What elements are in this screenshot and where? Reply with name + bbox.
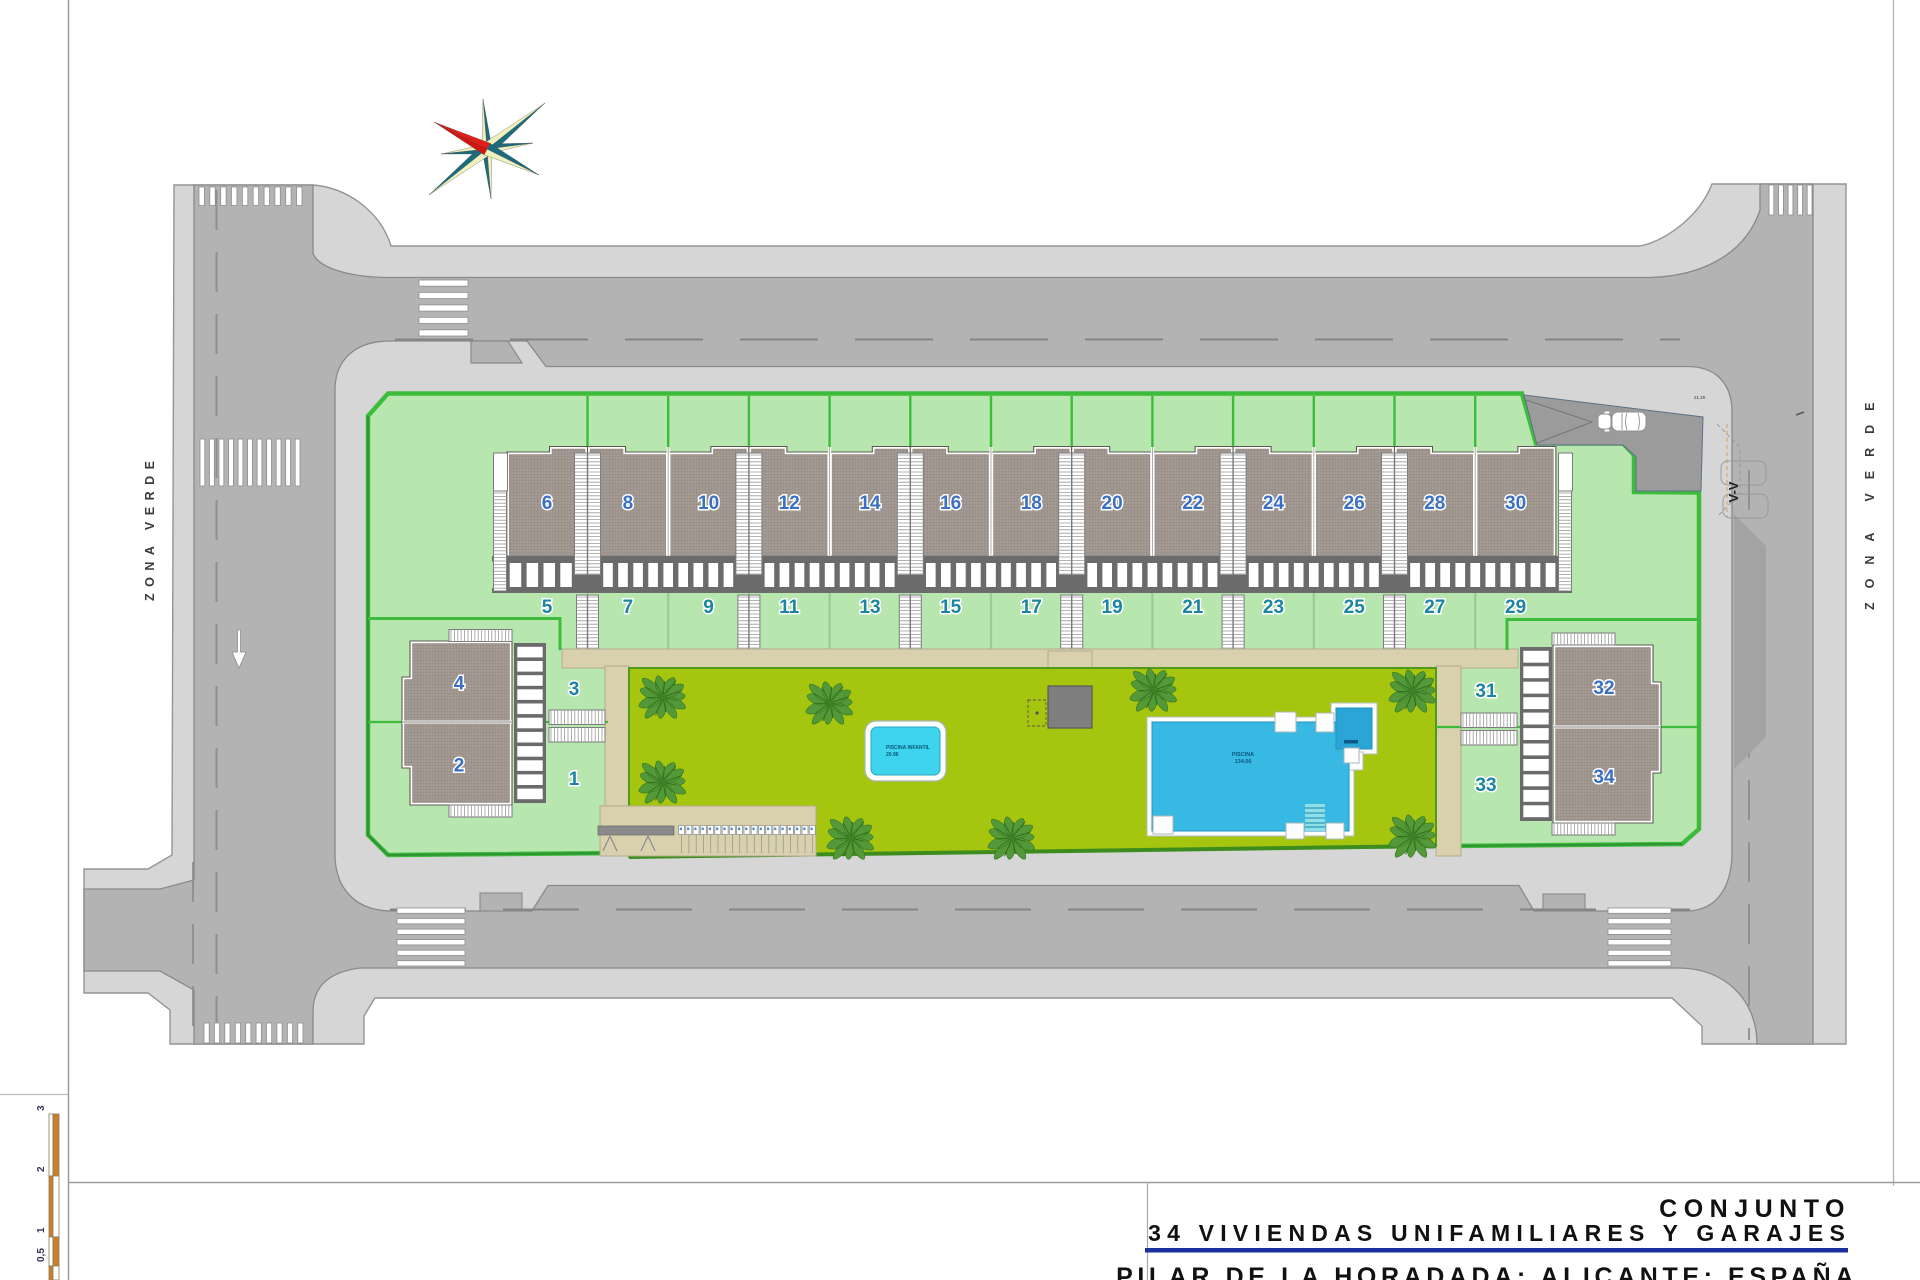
svg-text:134.06: 134.06 — [1235, 759, 1252, 765]
svg-text:3: 3 — [569, 679, 580, 700]
svg-text:18: 18 — [1021, 493, 1042, 514]
svg-text:9: 9 — [703, 597, 714, 618]
svg-text:22: 22 — [1182, 493, 1203, 514]
svg-text:4: 4 — [454, 674, 465, 695]
svg-text:16: 16 — [940, 493, 961, 514]
svg-text:PISCINA INFANTIL: PISCINA INFANTIL — [886, 745, 930, 751]
svg-text:3: 3 — [36, 1105, 47, 1111]
svg-text:34: 34 — [1593, 767, 1615, 788]
svg-text:V-V: V-V — [1726, 481, 1741, 502]
svg-text:34 VIVIENDAS UNIFAMILIARES Y G: 34 VIVIENDAS UNIFAMILIARES Y GARAJES — [1148, 1220, 1851, 1246]
svg-text:CONJUNTO: CONJUNTO — [1659, 1195, 1851, 1223]
svg-text:11: 11 — [779, 597, 800, 618]
svg-text:33: 33 — [1475, 775, 1496, 796]
svg-text:1: 1 — [569, 769, 580, 790]
svg-text:31: 31 — [1475, 681, 1497, 702]
svg-text:30: 30 — [1505, 493, 1526, 514]
svg-text:28: 28 — [1424, 493, 1445, 514]
svg-text:20: 20 — [1102, 493, 1123, 514]
svg-text:7: 7 — [623, 597, 634, 618]
svg-text:12: 12 — [779, 493, 800, 514]
svg-text:20.96: 20.96 — [886, 752, 899, 758]
svg-text:ZONA VERDE: ZONA VERDE — [1863, 389, 1877, 611]
svg-text:23: 23 — [1263, 597, 1284, 618]
svg-text:24: 24 — [1263, 493, 1285, 514]
svg-text:PILAR DE LA HORADADA; ALICANTE: PILAR DE LA HORADADA; ALICANTE; ESPAÑA — [1116, 1261, 1858, 1280]
svg-text:15: 15 — [940, 597, 962, 618]
svg-text:PISCINA: PISCINA — [1232, 752, 1254, 758]
svg-text:32: 32 — [1593, 678, 1614, 699]
svg-text:ZONA VERDE: ZONA VERDE — [143, 455, 157, 602]
svg-text:5: 5 — [542, 597, 553, 618]
svg-text:14: 14 — [859, 493, 881, 514]
svg-text:2: 2 — [36, 1166, 47, 1172]
svg-text:1: 1 — [36, 1227, 47, 1233]
svg-text:29: 29 — [1505, 597, 1526, 618]
svg-text:13: 13 — [859, 597, 880, 618]
svg-text:21: 21 — [1182, 597, 1204, 618]
svg-text:6: 6 — [542, 493, 553, 514]
svg-text:26: 26 — [1344, 493, 1365, 514]
svg-text:21.20: 21.20 — [1694, 395, 1706, 400]
svg-text:27: 27 — [1424, 597, 1445, 618]
svg-text:25: 25 — [1344, 597, 1366, 618]
svg-text:8: 8 — [623, 493, 634, 514]
svg-text:2: 2 — [454, 756, 465, 777]
svg-text:0,5: 0,5 — [36, 1248, 47, 1262]
svg-text:17: 17 — [1021, 597, 1042, 618]
svg-text:10: 10 — [698, 493, 719, 514]
svg-text:19: 19 — [1102, 597, 1123, 618]
